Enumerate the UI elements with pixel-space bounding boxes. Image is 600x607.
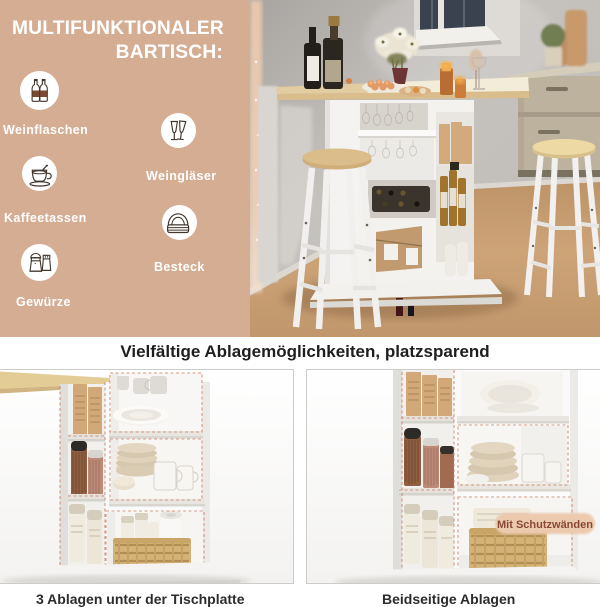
svg-text:Mit Schutzwänden: Mit Schutzwänden [497,519,593,531]
